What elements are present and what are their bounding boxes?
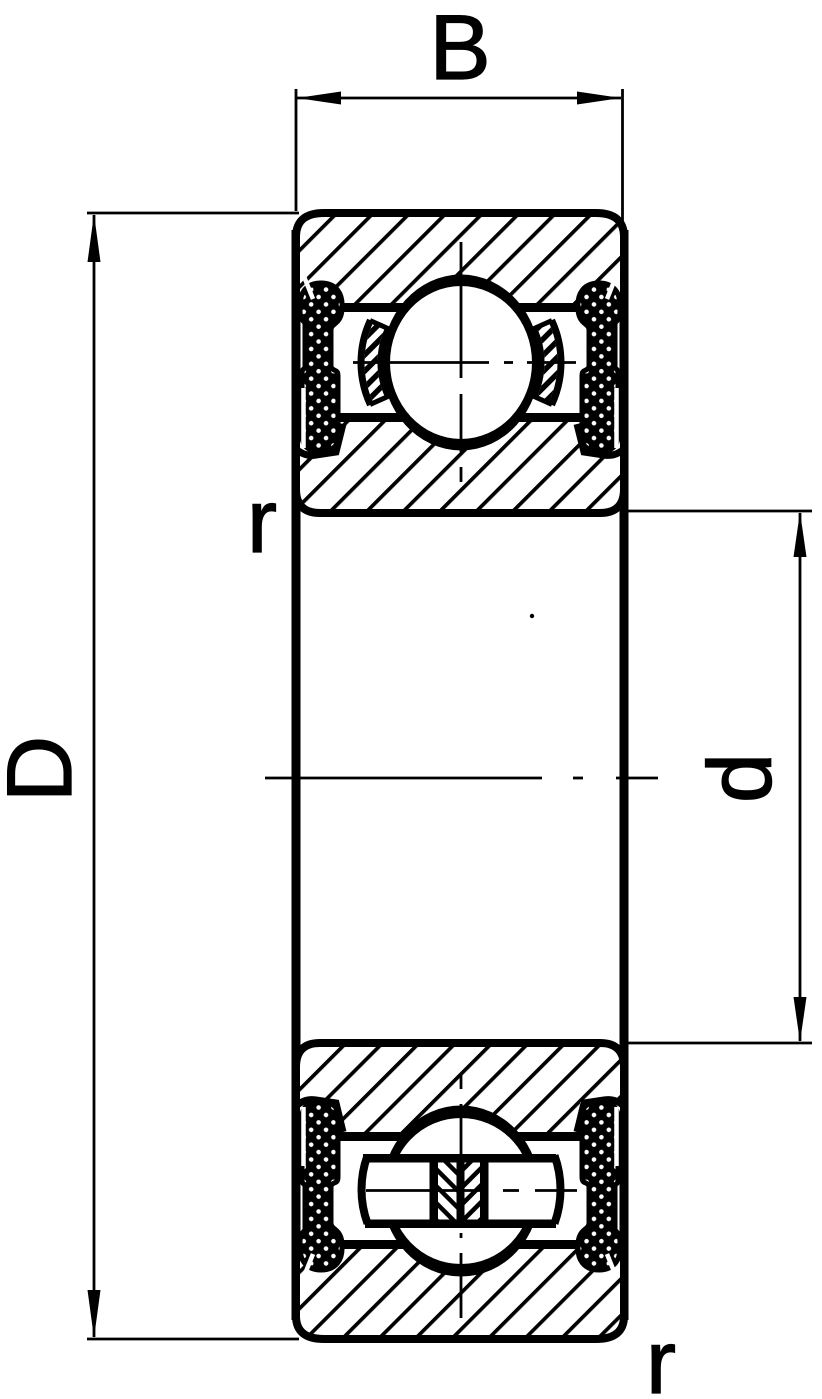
svg-text:D: D — [0, 736, 91, 802]
svg-text:r: r — [247, 472, 277, 572]
svg-text:d: d — [691, 753, 791, 803]
svg-text:r: r — [646, 1313, 676, 1399]
svg-text:B: B — [429, 0, 490, 99]
